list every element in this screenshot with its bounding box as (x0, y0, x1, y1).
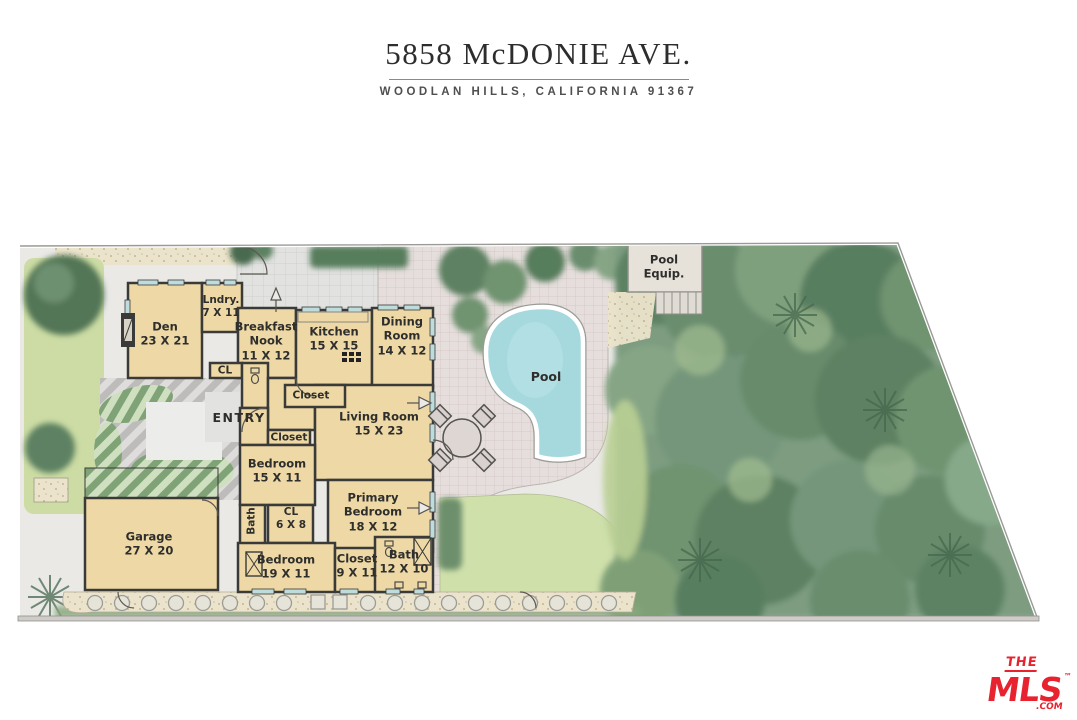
label-breakfast-nook: Breakfast Nook11 X 12 (234, 319, 298, 362)
room-labels: Den23 X 21 Lndry.7 X 11 Breakfast Nook11… (0, 0, 1077, 720)
label-closet2: Closet9 X 11 (337, 552, 378, 581)
trademark-symbol: ™ (1063, 672, 1071, 681)
label-closet-upper: Closet (293, 389, 330, 402)
label-closet-mid: Closet (271, 431, 308, 444)
label-pool: Pool (531, 369, 562, 385)
mls-logo: THE MLS™ .COM (984, 653, 1072, 712)
label-bedroom1: Bedroom15 X 11 (248, 457, 306, 486)
label-kitchen: Kitchen15 X 15 (309, 325, 358, 354)
label-laundry: Lndry.7 X 11 (200, 294, 242, 320)
label-bath2: Bath12 X 10 (375, 548, 433, 577)
label-den: Den23 X 21 (141, 320, 190, 349)
label-cl68: CL6 X 8 (276, 506, 306, 532)
label-bath-small: Bath (245, 507, 258, 535)
label-bedroom2: Bedroom19 X 11 (257, 553, 315, 582)
label-primary: Primary Bedroom18 X 12 (337, 490, 409, 533)
label-dining: Dining Room14 X 12 (376, 314, 428, 357)
label-entry: ENTRY (212, 410, 265, 426)
label-garage: Garage27 X 20 (125, 530, 174, 559)
label-pool-equip: Pool Equip. (640, 253, 688, 282)
floorplan-page: 5858 McDONIE AVE. WOODLAN HILLS, CALIFOR… (0, 0, 1077, 720)
label-living: Living Room15 X 23 (324, 410, 434, 439)
label-cl-den: CL (218, 364, 232, 377)
